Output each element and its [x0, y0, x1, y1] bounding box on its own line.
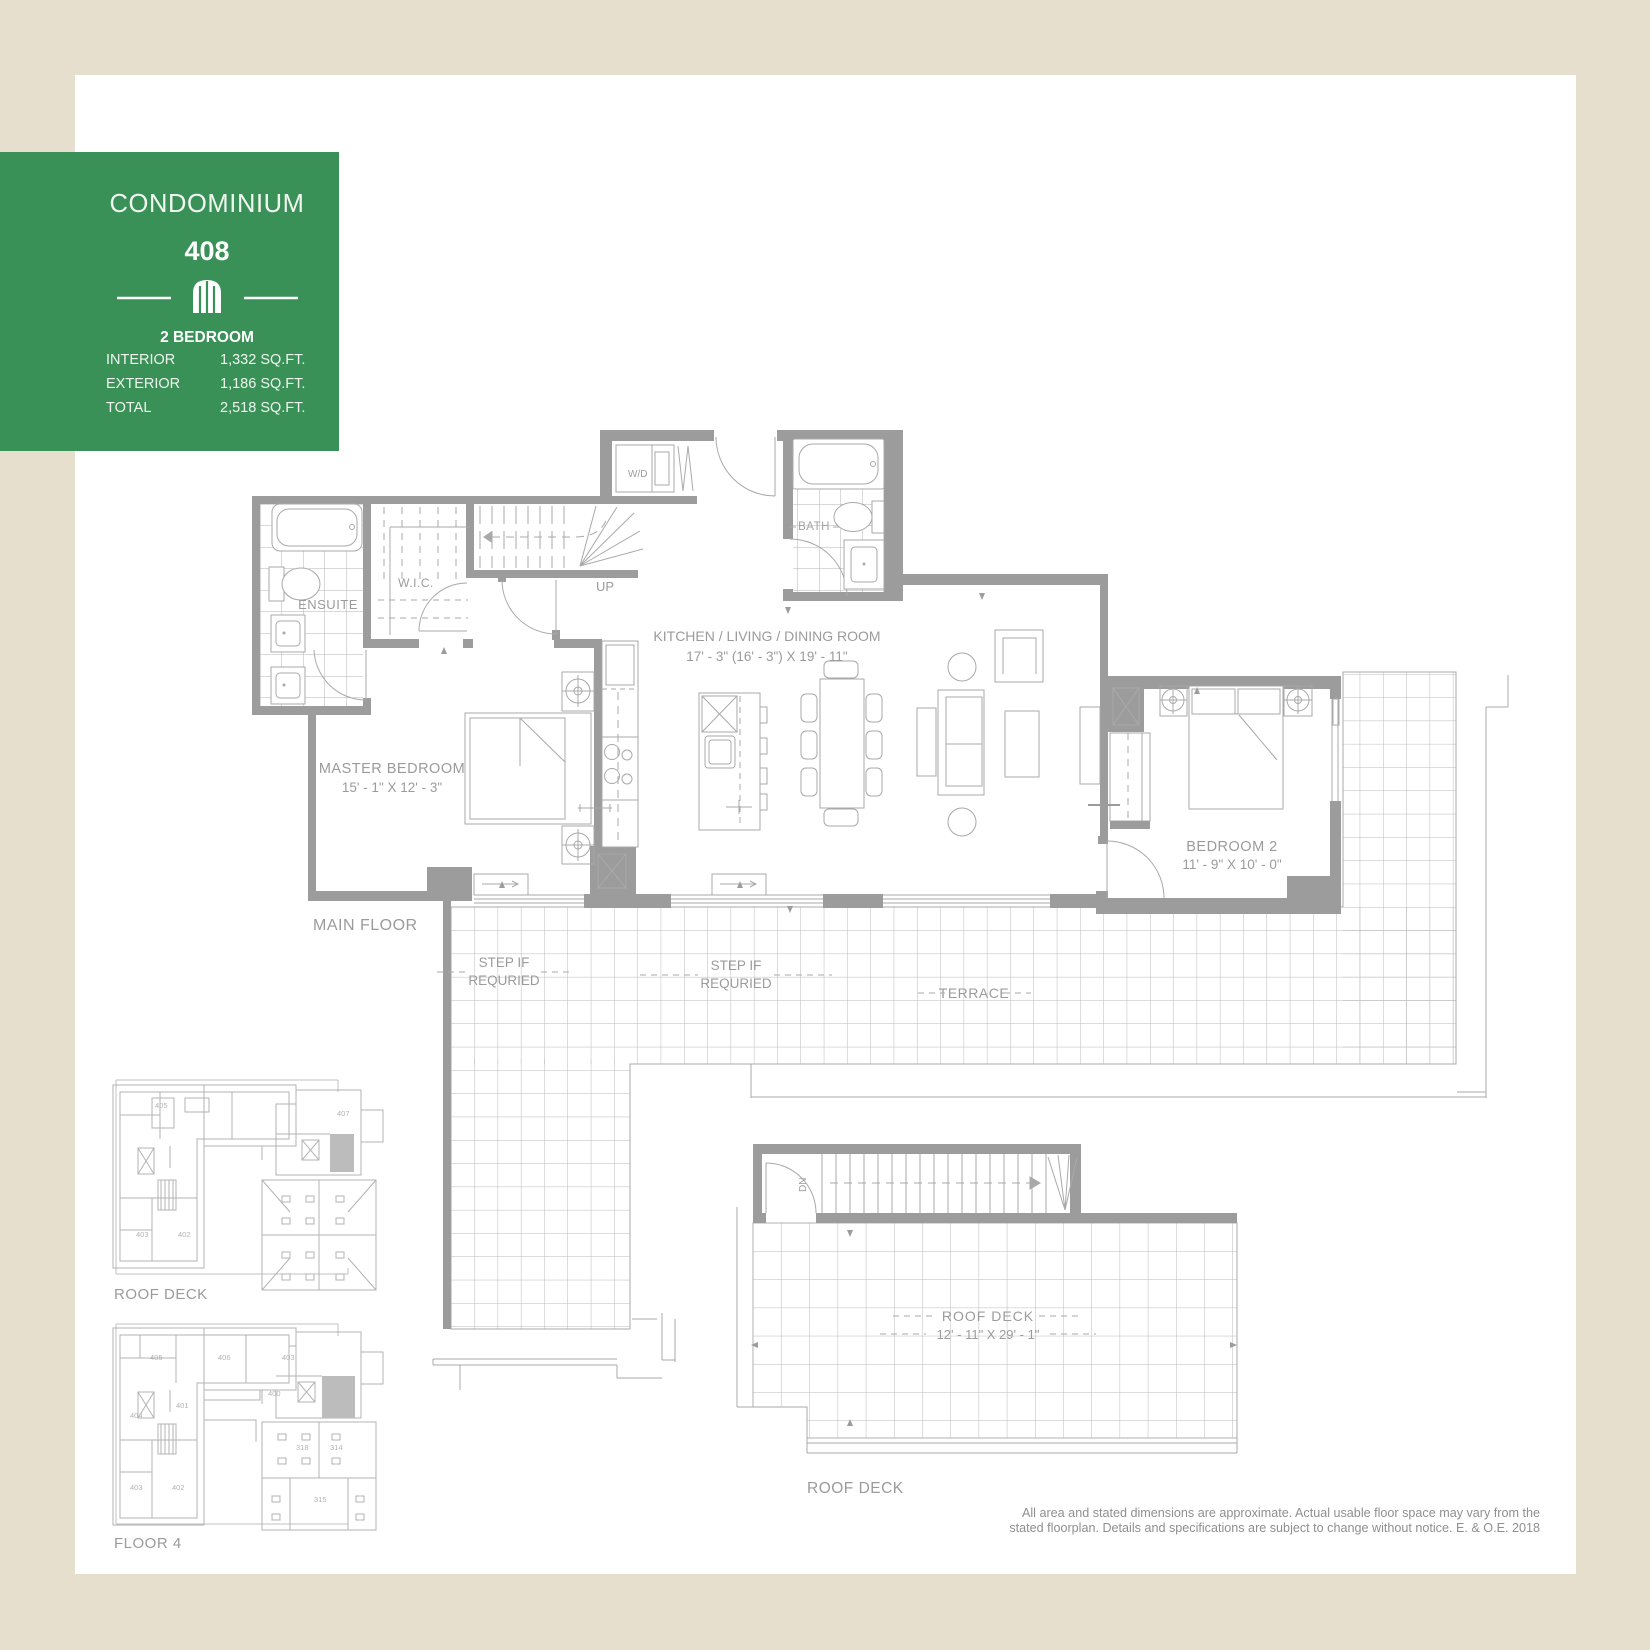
svg-text:405: 405 — [155, 1101, 168, 1110]
svg-text:W.I.C.: W.I.C. — [398, 576, 434, 590]
svg-text:STEP IF: STEP IF — [711, 958, 762, 973]
svg-text:BEDROOM 2: BEDROOM 2 — [1186, 839, 1278, 855]
svg-text:MAIN FLOOR: MAIN FLOOR — [313, 917, 418, 934]
svg-text:402: 402 — [178, 1230, 191, 1239]
svg-text:All area and stated dimensions: All area and stated dimensions are appro… — [1022, 1506, 1540, 1520]
svg-text:ROOF DECK: ROOF DECK — [942, 1308, 1034, 1324]
svg-text:REQURIED: REQURIED — [700, 976, 772, 991]
svg-text:KITCHEN / LIVING / DINING ROOM: KITCHEN / LIVING / DINING ROOM — [653, 628, 880, 644]
svg-text:MASTER BEDROOM: MASTER BEDROOM — [319, 761, 465, 777]
svg-text:401: 401 — [176, 1401, 189, 1410]
svg-text:stated floorplan. Details and: stated floorplan. Details and specificat… — [1009, 1521, 1540, 1535]
svg-text:403: 403 — [130, 1483, 143, 1492]
svg-text:FLOOR 4: FLOOR 4 — [114, 1535, 182, 1552]
svg-text:314: 314 — [330, 1443, 343, 1452]
svg-text:400: 400 — [268, 1389, 281, 1398]
svg-text:CONDOMINIUM: CONDOMINIUM — [110, 190, 305, 218]
svg-text:2 BEDROOM: 2 BEDROOM — [160, 329, 254, 346]
svg-text:ENSUITE: ENSUITE — [298, 597, 358, 612]
svg-text:403: 403 — [136, 1230, 149, 1239]
svg-text:1,332 SQ.FT.: 1,332 SQ.FT. — [220, 352, 305, 368]
svg-text:BATH: BATH — [798, 521, 830, 533]
svg-text:17' - 3" (16' - 3") X 19' - 11: 17' - 3" (16' - 3") X 19' - 11" — [686, 649, 848, 664]
svg-text:EXTERIOR: EXTERIOR — [106, 376, 180, 392]
svg-text:ROOF DECK: ROOF DECK — [114, 1286, 208, 1303]
svg-text:315: 315 — [314, 1495, 327, 1504]
svg-text:DN: DN — [798, 1178, 809, 1192]
svg-text:2,518 SQ.FT.: 2,518 SQ.FT. — [220, 400, 305, 416]
svg-text:405: 405 — [150, 1353, 163, 1362]
svg-text:REQURIED: REQURIED — [468, 973, 540, 988]
svg-text:ROOF DECK: ROOF DECK — [807, 1480, 904, 1497]
svg-text:W/D: W/D — [628, 469, 647, 480]
svg-text:11' - 9" X 10' - 0": 11' - 9" X 10' - 0" — [1182, 857, 1281, 872]
svg-text:15' - 1" X 12' - 3": 15' - 1" X 12' - 3" — [342, 780, 442, 795]
svg-text:404: 404 — [130, 1411, 143, 1420]
svg-text:403: 403 — [282, 1353, 295, 1362]
svg-text:INTERIOR: INTERIOR — [106, 352, 175, 368]
svg-text:UP: UP — [596, 579, 614, 594]
svg-text:12' - 11" X 29' - 1": 12' - 11" X 29' - 1" — [937, 1327, 1040, 1342]
svg-text:TOTAL: TOTAL — [106, 400, 151, 416]
svg-text:406: 406 — [218, 1353, 231, 1362]
svg-text:TERRACE: TERRACE — [939, 985, 1009, 1001]
svg-text:408: 408 — [184, 236, 229, 266]
svg-text:318: 318 — [296, 1443, 309, 1452]
svg-text:1,186 SQ.FT.: 1,186 SQ.FT. — [220, 376, 305, 392]
svg-text:407: 407 — [337, 1109, 350, 1118]
svg-text:402: 402 — [172, 1483, 185, 1492]
svg-text:STEP IF: STEP IF — [479, 955, 530, 970]
